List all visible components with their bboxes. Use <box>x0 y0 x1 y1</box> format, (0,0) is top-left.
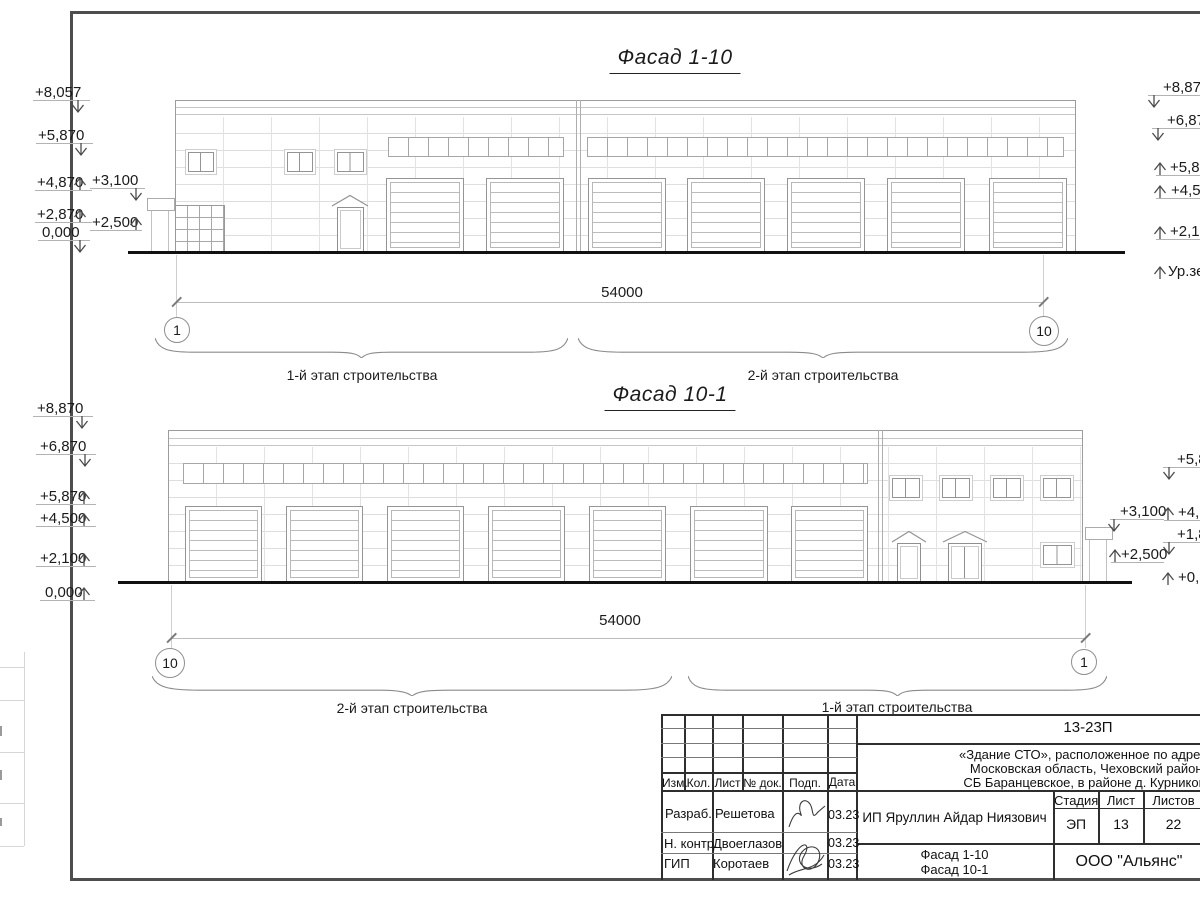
axis-bubble-1: 1 <box>1071 649 1097 675</box>
window <box>287 152 313 172</box>
sheet-edge-mark <box>0 726 2 736</box>
window <box>188 152 214 172</box>
role-label: ГИП <box>664 856 690 871</box>
elevation-arrow-up-icon <box>1160 506 1176 520</box>
elevation-mark: +2,10 <box>1170 223 1200 240</box>
window <box>993 478 1021 498</box>
date-value: 03.23 <box>828 857 856 871</box>
sectional-gate <box>887 178 965 252</box>
drawing-sheet: { "facade_top": { "title": "Фасад 1-10",… <box>0 0 1200 900</box>
sectional-gate <box>589 506 666 582</box>
date-value: 03.23 <box>828 808 856 822</box>
titleblock-line <box>856 843 1200 845</box>
window <box>1043 478 1071 498</box>
elevation-arrow-up-icon <box>76 552 92 566</box>
elevation-arrow-down-icon <box>70 100 86 114</box>
window <box>1043 545 1072 565</box>
client-name: ИП Яруллин Айдар Ниязович <box>856 810 1053 825</box>
titleblock-line <box>1053 808 1200 809</box>
elevation-mark: +3,100 <box>92 172 138 189</box>
stage-joint-line <box>882 430 883 582</box>
elevation-mark-line <box>36 566 96 567</box>
elevation-mark: +6,870 <box>1167 112 1200 129</box>
dimension-line <box>177 302 1044 303</box>
stage-value: ЭП <box>1054 816 1098 832</box>
sectional-gate <box>687 178 765 252</box>
sheet-edge-mark <box>0 818 2 826</box>
column-header-kol: Кол. <box>685 776 712 790</box>
titleblock-line <box>661 728 857 729</box>
elevation-mark-line <box>1111 562 1164 563</box>
elevation-arrow-down-icon <box>77 454 93 468</box>
frame-bottom-line <box>70 878 1200 881</box>
stage-joint-line <box>878 430 879 582</box>
elevation-arrow-up-icon <box>72 208 88 222</box>
role-label: Разраб. <box>665 806 712 821</box>
elevation-mark-line <box>90 230 142 231</box>
sectional-gate <box>486 178 564 252</box>
elevation-mark: 0,000 <box>42 224 80 241</box>
sectional-gate <box>791 506 868 582</box>
elevation-arrow-down-icon <box>1161 467 1177 481</box>
elevation-arrow-down-icon <box>1146 95 1162 109</box>
elevation-arrow-down-icon <box>1150 128 1166 142</box>
company-name: ООО "Альянс" <box>1053 853 1200 871</box>
project-address-line3: СБ Баранцевское, в районе д. Курниково <box>856 775 1200 790</box>
elevation-mark-line <box>1164 520 1200 521</box>
ground-line <box>128 251 1125 254</box>
elevation-mark: +6,870 <box>40 438 86 455</box>
role-label: Н. контр. <box>664 836 718 851</box>
ribbon-window <box>388 137 564 157</box>
elevation-arrow-down-icon <box>1161 542 1177 556</box>
ground-line <box>118 581 1132 584</box>
elevation-mark-line <box>36 526 96 527</box>
elevation-mark: +5,87 <box>1170 159 1200 176</box>
titleblock-line <box>661 853 857 854</box>
elevation-arrow-up-icon <box>1107 548 1123 562</box>
stage-label: 2-й этап строительства <box>748 367 899 383</box>
stage-label: 1-й этап строительства <box>822 699 973 715</box>
titleblock-line <box>827 714 829 880</box>
elevation-mark-line <box>35 190 92 191</box>
dimension-line <box>172 638 1086 639</box>
elevation-arrow-down-icon <box>1106 519 1122 533</box>
doc-title-line1: Фасад 1-10 <box>856 847 1053 862</box>
sectional-gate <box>387 506 464 582</box>
sheet-edge-hline <box>0 846 24 847</box>
sectional-gate <box>787 178 865 252</box>
window <box>942 478 970 498</box>
sheets-total: 22 <box>1144 816 1200 832</box>
parapet-line <box>169 445 1082 446</box>
project-address-line1: «Здание СТО», расположенное по адресу: <box>856 747 1200 762</box>
elevation-arrow-up-icon <box>1152 225 1168 239</box>
column-header-data: Дата <box>828 775 856 789</box>
project-code: 13-23П <box>856 719 1200 736</box>
canopy-posts <box>151 211 169 252</box>
facade-10-1-title: Фасад 10-1 <box>604 383 735 411</box>
stage-brace <box>578 338 1068 358</box>
facade-1-10-title: Фасад 1-10 <box>609 46 740 74</box>
dimension-value: 54000 <box>599 612 641 629</box>
date-value: 03.23 <box>828 836 856 850</box>
titleblock-line <box>661 772 857 774</box>
column-header-izm: Изм. <box>662 776 684 790</box>
ribbon-window <box>587 137 1064 157</box>
stage-label: 2-й этап строительства <box>337 700 488 716</box>
sheet-edge-mark <box>0 770 2 780</box>
elevation-mark-line <box>40 600 95 601</box>
sheet-edge-hline <box>0 700 24 701</box>
stage-joint-line <box>580 100 581 252</box>
sheet-number: 13 <box>1099 816 1143 832</box>
elevation-mark-line <box>1156 239 1200 240</box>
sectional-gate <box>286 506 363 582</box>
titleblock-border <box>661 714 663 880</box>
elevation-arrow-up-icon <box>1152 265 1168 279</box>
window <box>337 152 364 172</box>
storefront-glazing <box>175 205 225 252</box>
person-name: Коротаев <box>713 856 769 871</box>
titleblock-line <box>661 757 857 758</box>
elevation-arrow-up-icon <box>1152 184 1168 198</box>
stage-brace <box>152 676 672 696</box>
stage-brace <box>688 676 1107 696</box>
sectional-gate <box>588 178 666 252</box>
titleblock-line <box>661 743 857 744</box>
axis-bubble-10: 10 <box>155 648 185 678</box>
titleblock-line <box>661 832 857 833</box>
extension-line <box>1043 255 1044 317</box>
sectional-gate <box>185 506 262 582</box>
doc-title-line2: Фасад 10-1 <box>856 862 1053 877</box>
window <box>892 478 920 498</box>
stage-header: Стадия <box>1054 793 1098 808</box>
elevation-mark: +8,870 <box>1163 79 1200 96</box>
stage-joint-line <box>576 100 577 252</box>
elevation-arrow-up-icon <box>1160 571 1176 585</box>
elevation-mark: +0,8 <box>1178 569 1200 586</box>
stage-brace <box>155 338 568 358</box>
person-name: Решетова <box>715 806 775 821</box>
sheet-edge-hline <box>0 752 24 753</box>
elevation-mark: +4,50 <box>1171 182 1200 199</box>
sectional-gate <box>690 506 768 582</box>
elevation-arrow-up-icon <box>72 176 88 190</box>
elevation-mark: +5,870 <box>38 127 84 144</box>
parapet-line <box>169 438 1082 439</box>
elevation-mark: +5,8 <box>1177 451 1200 468</box>
elevation-mark: +8,057 <box>35 84 81 101</box>
elevation-mark: +4,8 <box>1178 504 1200 521</box>
sectional-gate <box>989 178 1067 252</box>
frame-top-line <box>70 11 1200 14</box>
elevation-mark-line <box>35 222 92 223</box>
elevation-arrow-up-icon <box>1152 161 1168 175</box>
entrance-door <box>337 207 364 252</box>
elevation-arrow-up-icon <box>76 490 92 504</box>
elevation-mark: +1,8 <box>1177 526 1200 543</box>
sectional-gate <box>488 506 565 582</box>
sectional-gate <box>386 178 464 252</box>
door-pediment <box>941 530 989 543</box>
elevation-arrow-up-icon <box>76 512 92 526</box>
person-name: Двоеглазов <box>713 836 782 851</box>
elevation-arrow-down-icon <box>73 143 89 157</box>
entrance-door <box>897 543 921 582</box>
signature <box>781 831 827 879</box>
elevation-arrow-up-icon <box>128 216 144 230</box>
canopy <box>147 198 175 211</box>
sheets-header: Листов <box>1144 793 1200 808</box>
elevation-arrow-up-icon <box>76 586 92 600</box>
column-header-doc: № док. <box>743 776 782 790</box>
parapet-line <box>176 107 1075 108</box>
sheet-edge-vline <box>24 652 25 846</box>
stage-label: 1-й этап строительства <box>287 367 438 383</box>
elevation-mark-line <box>36 504 96 505</box>
elevation-arrow-down-icon <box>74 416 90 430</box>
project-address-line2: Московская область, Чеховский район, <box>856 761 1200 776</box>
door-pediment <box>330 194 370 207</box>
titleblock-line <box>661 790 1200 792</box>
elevation-mark-line <box>1156 175 1200 176</box>
sheet-edge-hline <box>0 803 24 804</box>
elevation-mark: +8,870 <box>37 400 83 417</box>
double-entrance-door <box>948 543 982 582</box>
canopy-posts <box>1089 540 1107 582</box>
elevation-arrow-down-icon <box>72 240 88 254</box>
ribbon-window <box>183 463 868 484</box>
dimension-value: 54000 <box>601 284 643 301</box>
titleblock-line <box>856 743 1200 745</box>
column-header-list: Лист <box>713 776 742 790</box>
parapet-line <box>176 114 1075 115</box>
elevation-mark-line <box>1156 198 1200 199</box>
door-pediment <box>890 530 928 543</box>
sheet-edge-hline <box>0 667 24 668</box>
elevation-mark: Ур.зе <box>1168 263 1200 280</box>
extension-line <box>176 255 177 317</box>
column-header-podp: Подп. <box>783 776 827 790</box>
sheet-header: Лист <box>1099 793 1143 808</box>
signature <box>785 793 827 833</box>
elevation-arrow-down-icon <box>128 188 144 202</box>
